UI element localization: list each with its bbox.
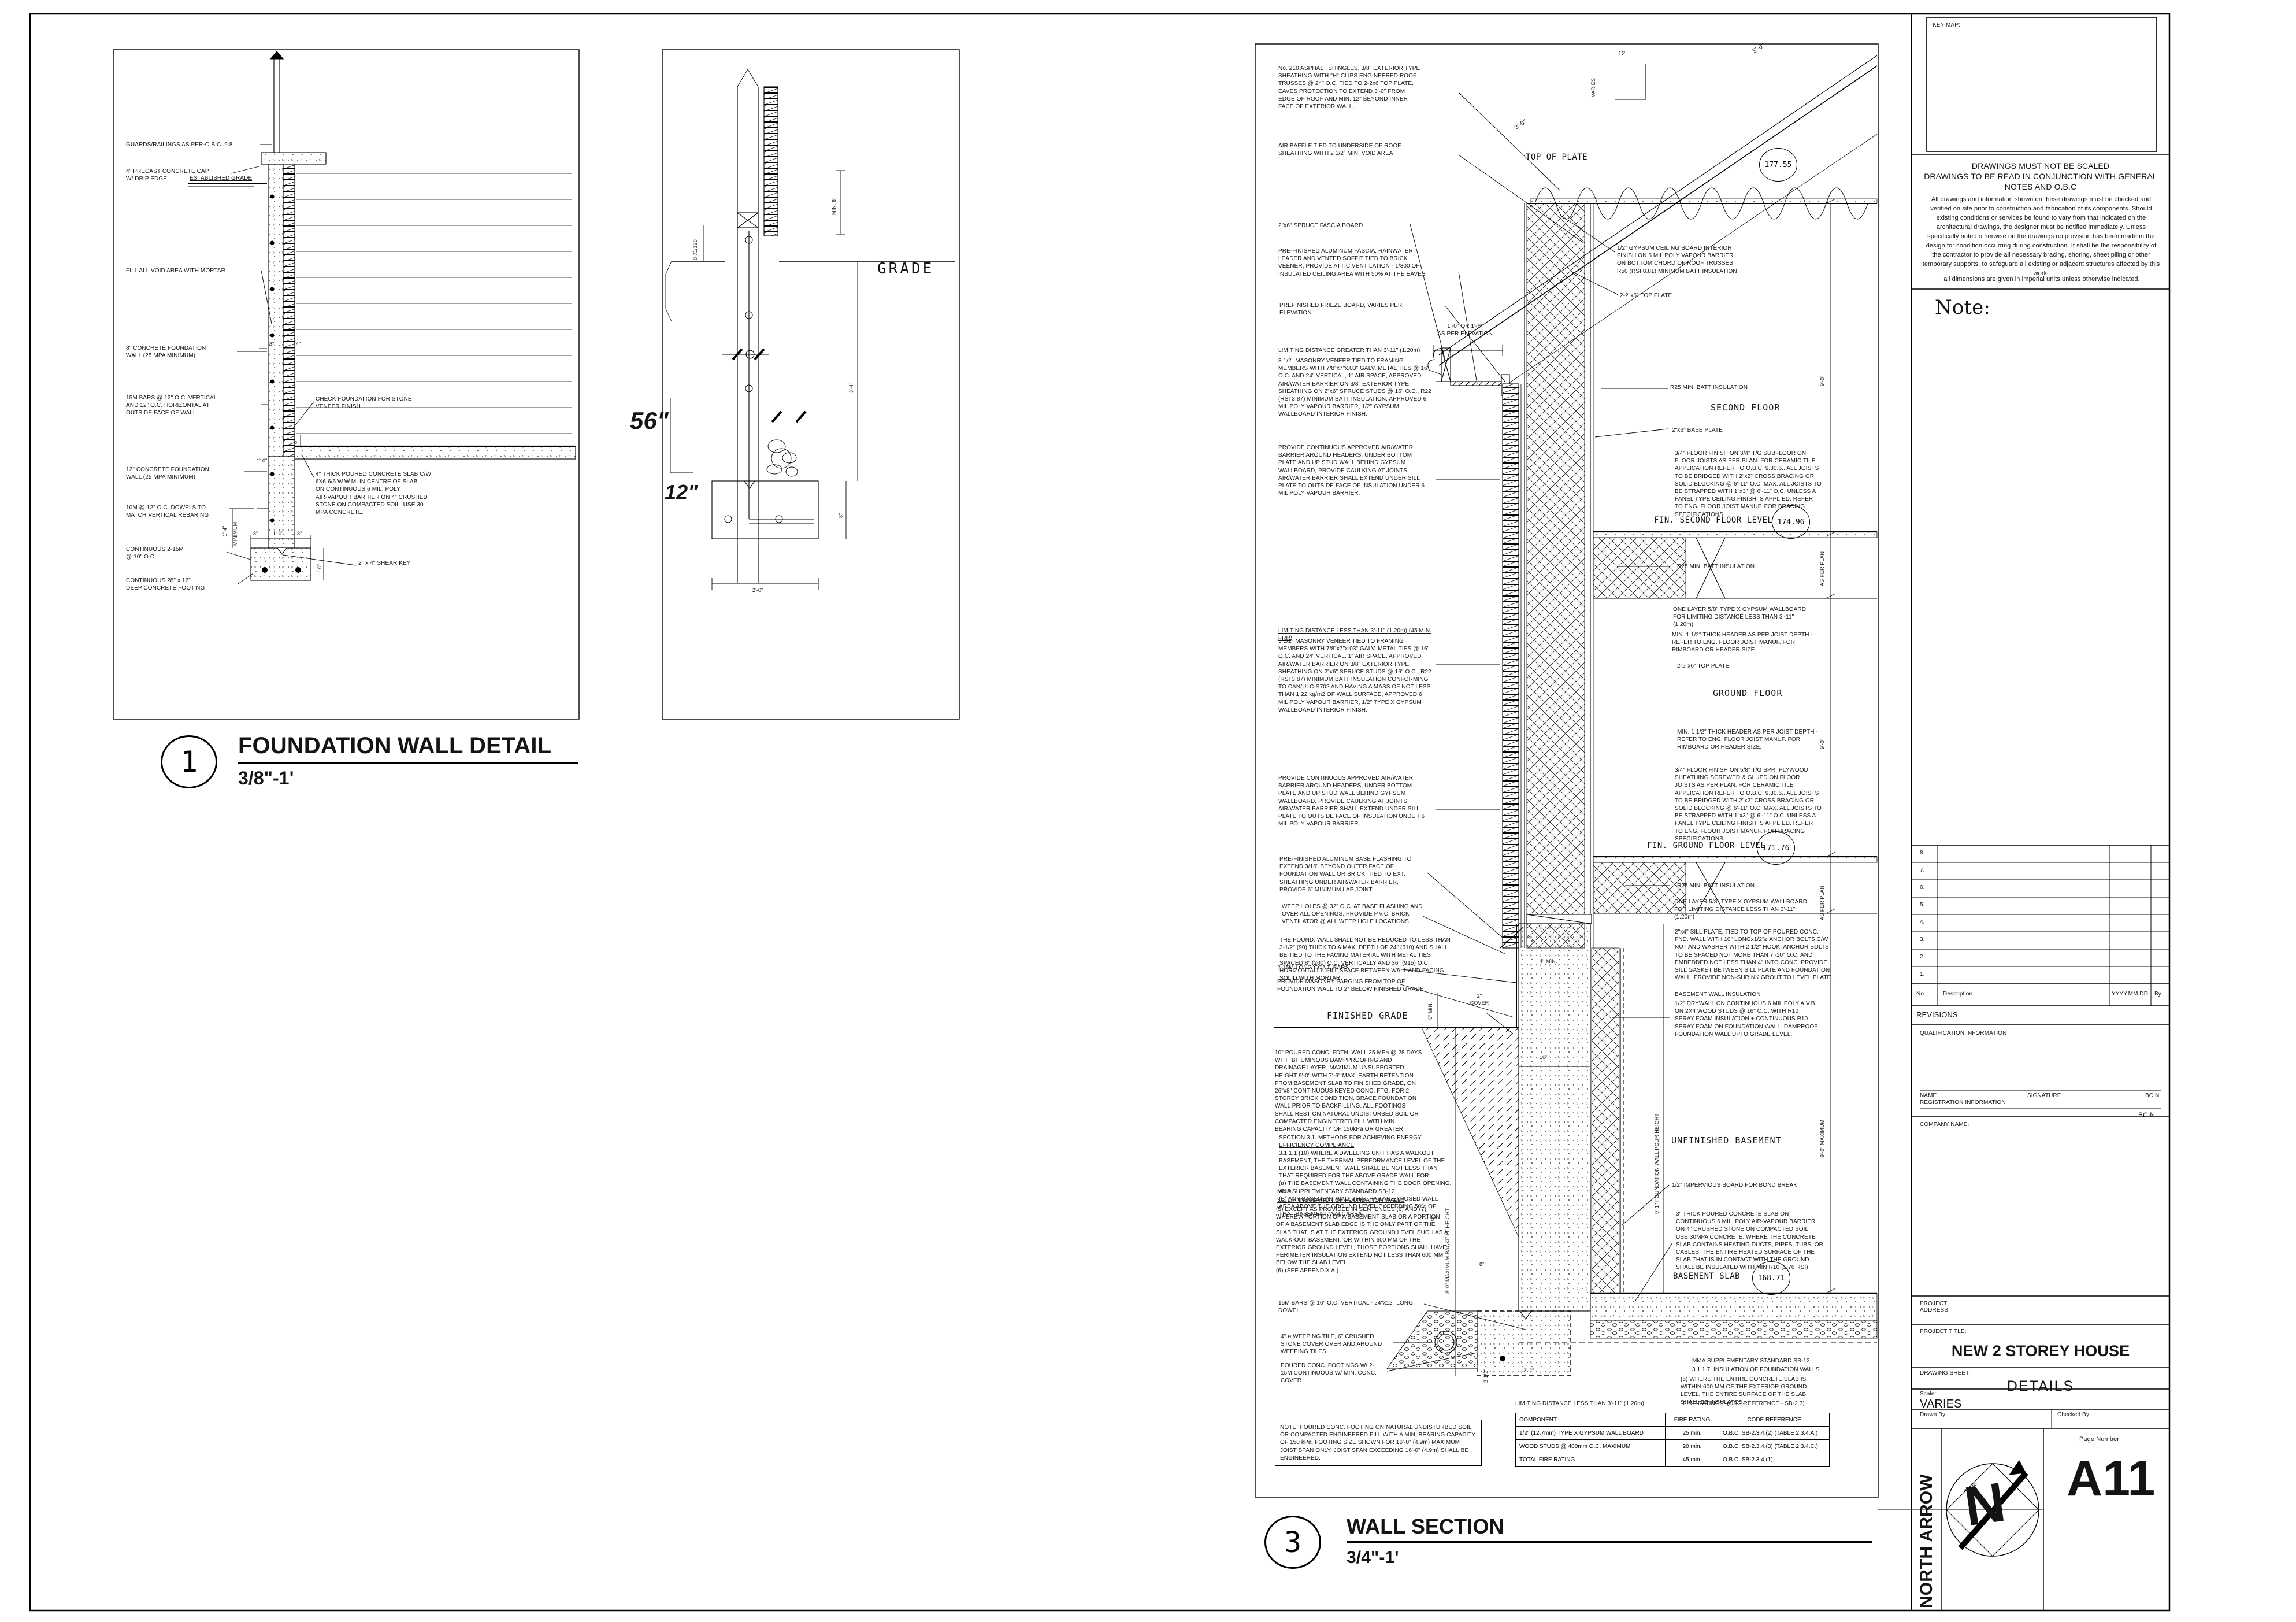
rev-row-8: 8.: [1920, 850, 1925, 856]
rev-row-5: 5.: [1920, 902, 1925, 908]
north-arrow-label: NORTH ARROW: [1915, 1474, 1938, 1608]
drawing-sheet: DETAILS: [1916, 1377, 2165, 1396]
company-label: COMPANY NAME:: [1920, 1121, 1969, 1128]
rev-head-by: By: [2154, 991, 2161, 997]
rev-row-3: 3.: [1920, 936, 1925, 943]
rev-head-date: YYYY.MM.DD: [2112, 991, 2148, 997]
project-title-label: PROJECT TITLE:: [1920, 1328, 1967, 1335]
qualification-label: QUALIFICATION INFORMATION: [1920, 1030, 2006, 1036]
drawing-sheet: GUARDS/RAILINGS AS PER-O.B.C. 9.8 4" PRE…: [0, 0, 2296, 1622]
checked-by-label: Checked By: [2057, 1412, 2089, 1418]
page-number-label: Page Number: [2079, 1436, 2119, 1443]
tb-note-scaled: DRAWINGS MUST NOT BE SCALED: [1916, 161, 2165, 171]
page-number: A11: [2067, 1446, 2155, 1512]
project-address-label: PROJECT ADDRESS:: [1920, 1301, 1950, 1313]
drawn-by-label: Drawn By:: [1920, 1412, 1947, 1418]
rev-row-2: 2.: [1920, 954, 1925, 960]
tb-note-body: All drawings and information shown on th…: [1922, 195, 2160, 278]
drawing-sheet-label: DRAWING SHEET:: [1920, 1370, 1970, 1376]
rev-head-desc: Description: [1943, 991, 1972, 997]
tb-note-units: all dimensions are given in imperial uni…: [1930, 275, 2153, 284]
rev-head-no: No.: [1916, 991, 1926, 997]
project-title: NEW 2 STOREY HOUSE: [1916, 1341, 2165, 1362]
name-label: NAME: [1920, 1093, 1937, 1099]
rev-row-7: 7.: [1920, 867, 1925, 873]
rev-row-6: 6.: [1920, 884, 1925, 891]
rev-row-4: 4.: [1920, 919, 1925, 925]
bcin-label: BCIN: [2145, 1093, 2159, 1099]
rev-row-1: 1.: [1920, 971, 1925, 977]
signature-label: SIGNATURE: [2027, 1093, 2061, 1099]
tb-note-conjunction: DRAWINGS TO BE READ IN CONJUNCTION WITH …: [1916, 171, 2165, 192]
bcin2-label: BCIN: [2138, 1111, 2155, 1119]
keymap-label: KEY MAP:: [1933, 22, 1960, 28]
revisions-label: REVISIONS: [1916, 1010, 1958, 1019]
tb-note-label: Note:: [1935, 296, 1990, 319]
registration-label: REGISTRATION INFORMATION: [1920, 1099, 2006, 1106]
scale-value: VARIES: [1920, 1397, 1961, 1412]
